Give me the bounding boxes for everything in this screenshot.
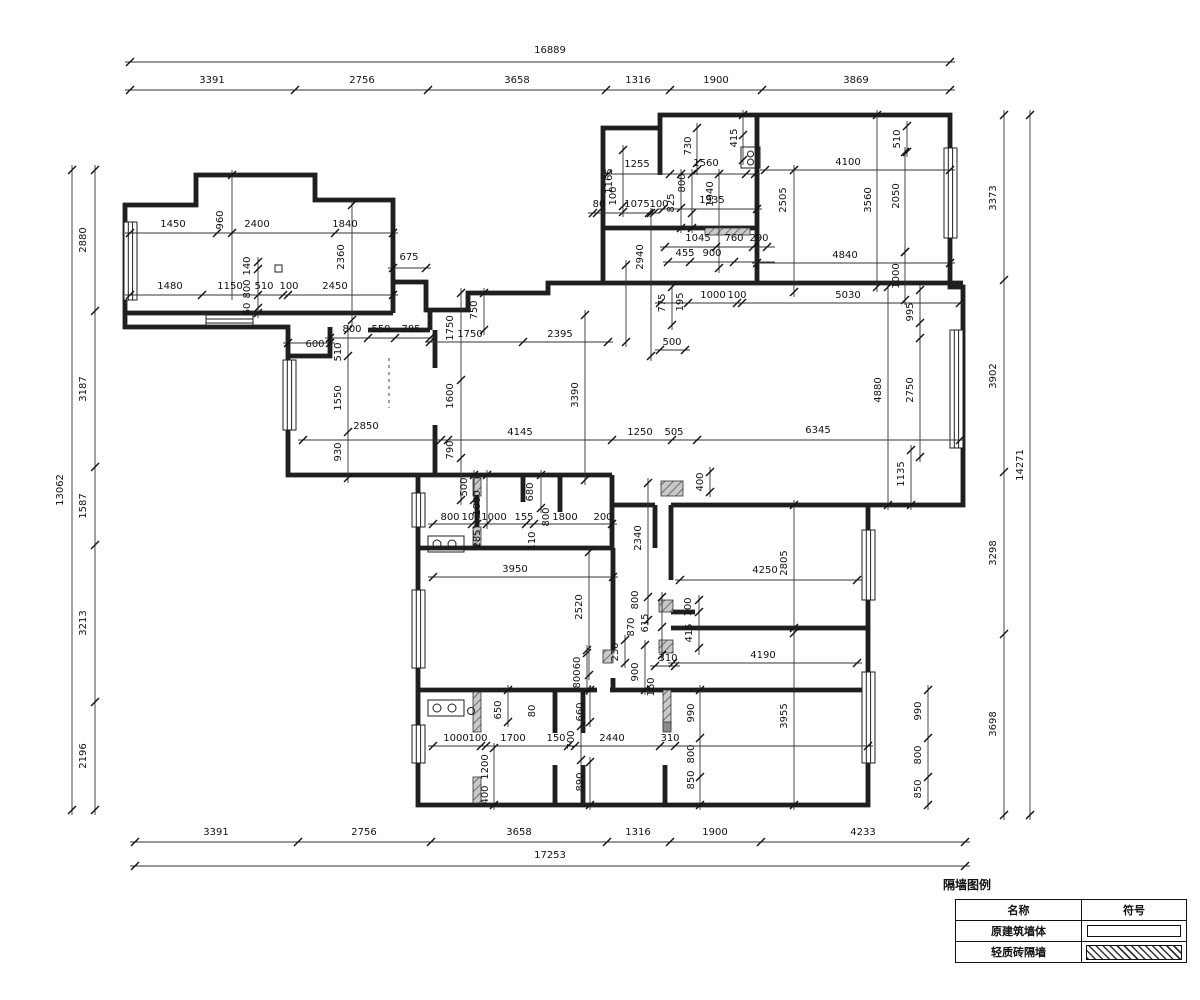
dimension-chain [125, 291, 398, 299]
dimension-label: 5030 [835, 290, 860, 301]
dimension-label: 825 [666, 193, 677, 212]
dimension-label: 4250 [752, 565, 777, 576]
dimension-label: 285 [472, 529, 483, 548]
floor-plan-page: 1688933912756365813161900386933912756365… [0, 0, 1200, 1000]
dimension-label: 660 [575, 702, 586, 721]
dimension-chain [644, 478, 652, 625]
dimension-label: 3658 [504, 75, 529, 86]
dimension-label: 900 [630, 662, 641, 681]
dimension-label: 615 [640, 613, 651, 632]
window-symbol [124, 222, 137, 300]
dimension-label: 775 [657, 293, 668, 312]
dimension-label: 455 [675, 248, 694, 259]
dimension-chain [903, 121, 911, 157]
dimension-label: 1900 [702, 827, 727, 838]
dimension-label: 3391 [203, 827, 228, 838]
dimension-label: 1250 [627, 427, 652, 438]
dimension-label: 2940 [635, 244, 646, 269]
dimension-label: 17253 [534, 850, 566, 861]
dimension-label: 930 [333, 442, 344, 461]
dimension-label: 750 [469, 300, 480, 319]
dimension-label: 800 [686, 744, 697, 763]
dimension-label: 310 [658, 653, 677, 664]
dimension-label: 1450 [160, 219, 185, 230]
dimension-label: 1480 [157, 281, 182, 292]
dimension-chain [125, 229, 398, 237]
dimension-label: 2756 [349, 75, 374, 86]
dimension-label: 16889 [534, 45, 566, 56]
legend-row-original-wall-symbol [1082, 921, 1187, 942]
window-symbol [412, 725, 425, 763]
dimension-label: 110 [527, 531, 538, 550]
dimension-label: 4233 [850, 827, 875, 838]
legend: 隔墙图例 名称 符号 原建筑墙体 轻质砖隔墙 [941, 876, 1189, 963]
dimension-chain [901, 147, 909, 257]
legend-title: 隔墙图例 [943, 876, 1189, 893]
light-partition-solid [663, 722, 671, 732]
dimension-chain [457, 288, 465, 505]
dimension-chain [130, 862, 970, 870]
dimension-label: 1750 [457, 329, 482, 340]
window-symbol [950, 330, 963, 448]
window-symbol [944, 148, 957, 238]
dimension-label: 160 [646, 677, 657, 696]
dimension-label: 650 [493, 700, 504, 719]
dimension-label: 100 [468, 733, 487, 744]
dimension-label: 2805 [779, 550, 790, 575]
dimension-label: 1587 [78, 493, 89, 518]
dimension-label: 1600 [445, 383, 456, 408]
dimension-chain [695, 595, 703, 655]
dimension-chain [621, 635, 629, 668]
dimension-label: 415 [684, 623, 695, 642]
dimension-label: 3950 [502, 564, 527, 575]
dimension-label: 14271 [1015, 449, 1026, 481]
dimension-label: 995 [905, 302, 916, 321]
dimension-label: 230 [610, 642, 621, 661]
dimension-label: 850 [913, 779, 924, 798]
dimension-chain [585, 547, 593, 680]
legend-row-original-wall-label: 原建筑墙体 [956, 921, 1082, 942]
dimension-chain [696, 685, 704, 810]
original-wall-symbol [1087, 925, 1181, 937]
dimension-label: 100 [279, 281, 298, 292]
dimension-label: 4880 [873, 377, 884, 402]
dimension-label: 730 [683, 136, 694, 155]
legend-row-light-partition-label: 轻质砖隔墙 [956, 942, 1082, 963]
dimension-label: 1000 [700, 290, 725, 301]
dimension-chain [125, 86, 955, 94]
dimension-label: 1045 [685, 233, 710, 244]
dimension-chain [873, 110, 881, 292]
dimension-label: 1135 [896, 461, 907, 486]
dimension-label: 510 [333, 342, 344, 361]
dimension-label: 1000 [481, 512, 506, 523]
dimension-label: 155 [514, 512, 533, 523]
dimension-chain [1000, 110, 1008, 820]
dimension-label: 290 [749, 233, 768, 244]
dimension-label: 800 [541, 507, 552, 526]
window-symbol [283, 360, 296, 430]
dimension-label: 60 [572, 657, 583, 670]
dimension-label: 1000 [891, 263, 902, 288]
dimension-label: 200 [593, 512, 612, 523]
window-symbol [412, 493, 425, 527]
dimension-label: 80 [527, 705, 538, 718]
dimension-label: 1000 [472, 490, 483, 515]
dimension-chain [924, 685, 932, 810]
dimension-chain [1026, 110, 1034, 820]
dimension-chain [581, 310, 589, 485]
light-partition [661, 481, 683, 496]
dimension-label: 600 [305, 339, 324, 350]
dimension-label: 960 [215, 210, 226, 229]
dimension-label: 2440 [599, 733, 624, 744]
dimension-label: 2050 [891, 183, 902, 208]
dimension-chain [790, 628, 798, 810]
dimension-label: 1200 [480, 754, 491, 779]
dimension-label: 13062 [55, 474, 66, 506]
dimension-chain [586, 757, 594, 810]
light-partition [659, 600, 673, 612]
dimension-label: 500 [459, 477, 470, 496]
dimension-label: 1550 [333, 385, 344, 410]
dimension-label: 2400 [244, 219, 269, 230]
dimension-chain [884, 282, 892, 510]
dimension-label: 80 [593, 199, 606, 210]
dimension-label: 1800 [552, 512, 577, 523]
dimension-label: 1075 [624, 199, 649, 210]
dimension-label: 140 [242, 256, 253, 275]
dimension-label: 100 [727, 290, 746, 301]
dimension-label: 510 [892, 129, 903, 148]
dimension-label: 4190 [750, 650, 775, 661]
column-marker-icon [275, 265, 282, 272]
windows [124, 148, 963, 763]
dimension-label: 900 [702, 248, 721, 259]
dimension-label: 760 [724, 233, 743, 244]
legend-header-name: 名称 [956, 900, 1082, 921]
dimension-chain [901, 247, 909, 305]
dimension-chain [130, 838, 970, 846]
dimension-label: 310 [660, 733, 679, 744]
dimension-label: 1700 [500, 733, 525, 744]
dimension-chain [91, 165, 99, 815]
dimension-label: 1935 [699, 195, 724, 206]
dimension-chain [739, 110, 747, 165]
dimension-label: 1255 [624, 159, 649, 170]
dimension-label: 3955 [779, 703, 790, 728]
dimension-label: 1560 [693, 158, 718, 169]
dimension-label: 1840 [332, 219, 357, 230]
dimension-label: 1750 [445, 315, 456, 340]
dimension-chain [428, 742, 873, 750]
dimension-label: 4145 [507, 427, 532, 438]
dimension-label: 3560 [863, 187, 874, 212]
dimension-chain [675, 576, 862, 584]
floor-plan-svg: 1688933912756365813161900386933912756365… [0, 0, 1200, 1000]
dimension-chain [907, 445, 915, 510]
dimension-label: 2196 [78, 743, 89, 768]
stove-icon [428, 700, 464, 716]
legend-table: 名称 符号 原建筑墙体 轻质砖隔墙 [955, 899, 1187, 963]
dimension-chain [490, 743, 498, 810]
dimension-label: 785 [401, 324, 420, 335]
dimension-label: 510 [254, 281, 273, 292]
dimension-label: 800 [242, 279, 253, 298]
dimension-label: 990 [686, 703, 697, 722]
dimension-label: 2340 [633, 525, 644, 550]
dimension-label: 800 [630, 590, 641, 609]
dimension-chain [622, 260, 630, 347]
dimension-label: 3390 [570, 382, 581, 407]
dimension-label: 3902 [988, 363, 999, 388]
dimension-label: 2850 [353, 421, 378, 432]
dimension-label: 1900 [703, 75, 728, 86]
dimension-label: 790 [445, 440, 456, 459]
dimension-label: 675 [399, 252, 418, 263]
dimension-label: 4100 [835, 157, 860, 168]
dimension-chain [688, 169, 696, 233]
dimension-chain [916, 285, 924, 343]
dimension-chain [344, 325, 352, 483]
dimension-label: 400 [695, 472, 706, 491]
dimension-label: 2360 [336, 244, 347, 269]
dimension-label: 2505 [778, 187, 789, 212]
dimension-label: 800 [440, 512, 459, 523]
dimension-label: 195 [675, 292, 686, 311]
dimension-label: 800 [342, 324, 361, 335]
dimension-label: 1150 [217, 281, 242, 292]
dimension-chain [325, 334, 435, 342]
window-symbol [862, 530, 875, 600]
dimension-chain [790, 165, 798, 297]
dimension-label: 1000 [443, 733, 468, 744]
dimension-labels: 1688933912756365813161900386933912756365… [55, 45, 1026, 861]
dimension-label: 505 [664, 427, 683, 438]
dimension-label: 700 [566, 730, 577, 749]
dimension-chain [68, 165, 76, 815]
dimension-label: 800 [677, 173, 688, 192]
dimension-label: 4840 [832, 250, 857, 261]
dimension-label: 3658 [506, 827, 531, 838]
dimension-label: 100 [683, 597, 694, 616]
dimension-label: 100 [608, 186, 619, 205]
legend-header-symbol: 符号 [1082, 900, 1187, 921]
dimension-label: 3391 [199, 75, 224, 86]
dimension-label: 6345 [805, 425, 830, 436]
legend-row-light-partition-symbol [1082, 942, 1187, 963]
dimension-label: 3187 [78, 376, 89, 401]
dimension-label: 415 [729, 128, 740, 147]
dimension-label: 3298 [988, 540, 999, 565]
dimension-label: 3869 [843, 75, 868, 86]
dimension-chain [790, 500, 798, 633]
dimension-label: 2880 [78, 227, 89, 252]
dimension-label: 2750 [905, 377, 916, 402]
dimension-label: 150 [546, 733, 565, 744]
dimension-label: 2395 [547, 329, 572, 340]
dimension-chains [68, 58, 1034, 870]
dimension-label: 3698 [988, 711, 999, 736]
dimension-label: 890 [575, 772, 586, 791]
dimension-label: 2756 [351, 827, 376, 838]
dimension-label: 400 [480, 785, 491, 804]
dimension-label: 990 [913, 701, 924, 720]
dimension-label: 60 [242, 303, 253, 316]
dimension-label: 800 [572, 669, 583, 688]
dimension-chain [706, 467, 714, 497]
dimension-label: 500 [662, 337, 681, 348]
dimension-label: 3373 [988, 185, 999, 210]
light-partition-symbol [1086, 945, 1182, 960]
dimension-label: 2450 [322, 281, 347, 292]
dimension-label: 1316 [625, 827, 650, 838]
dimension-label: 1316 [625, 75, 650, 86]
dimension-label: 2520 [574, 594, 585, 619]
dimension-label: 850 [686, 770, 697, 789]
window-symbol [412, 590, 425, 668]
dimension-chain [125, 58, 955, 66]
dimension-label: 800 [913, 745, 924, 764]
dimension-label: 550 [371, 324, 390, 335]
dimension-label: 3213 [78, 610, 89, 635]
dimension-label: 870 [626, 617, 637, 636]
dimension-label: 680 [525, 482, 536, 501]
